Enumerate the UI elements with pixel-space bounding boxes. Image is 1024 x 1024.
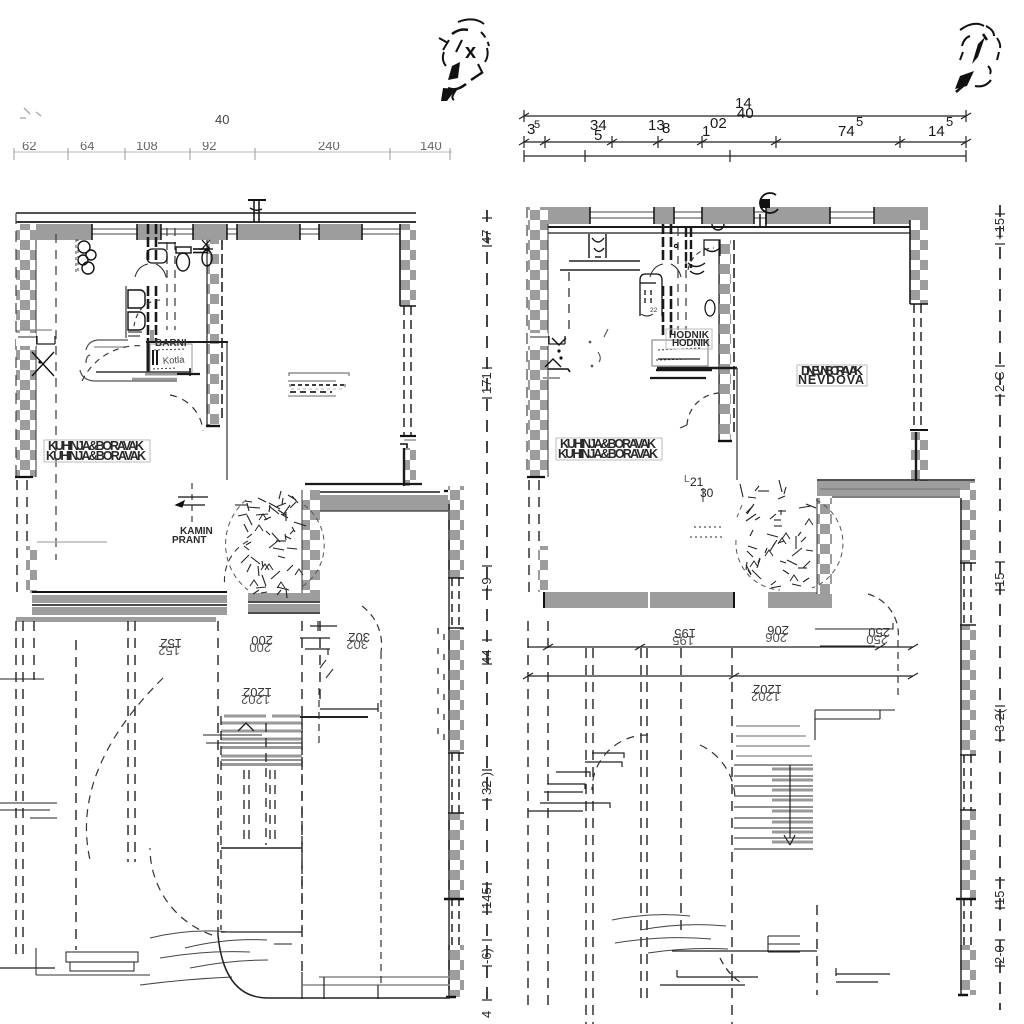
svg-text:KUHINJA&BORAVAK: KUHINJA&BORAVAK xyxy=(558,447,658,461)
svg-text:Kotla: Kotla xyxy=(162,354,185,367)
svg-text:1202: 1202 xyxy=(751,689,780,704)
svg-text:30: 30 xyxy=(700,486,714,500)
svg-text:2-C: 2-C xyxy=(992,371,1007,392)
svg-text:4: 4 xyxy=(479,1011,494,1018)
svg-text:2-0: 2-0 xyxy=(992,945,1007,964)
svg-text:302: 302 xyxy=(346,637,368,652)
svg-text:14: 14 xyxy=(928,123,945,140)
svg-text:+15: +15 xyxy=(992,218,1007,240)
svg-text:3-2(: 3-2( xyxy=(992,708,1007,732)
svg-text:47: 47 xyxy=(479,230,494,244)
svg-text:-9: -9 xyxy=(479,577,494,589)
svg-text:145: 145 xyxy=(479,887,494,909)
svg-text:8: 8 xyxy=(662,120,670,137)
svg-text:152: 152 xyxy=(158,643,180,658)
svg-text:22: 22 xyxy=(650,307,658,314)
svg-text:BARNI: BARNI xyxy=(155,338,187,349)
svg-text:74: 74 xyxy=(838,123,855,140)
svg-text:5: 5 xyxy=(594,127,602,144)
svg-text:15: 15 xyxy=(992,891,1007,905)
svg-text:NEVDOVA: NEVDOVA xyxy=(798,373,864,387)
svg-text:KUHINJA&BORAVAK: KUHINJA&BORAVAK xyxy=(46,449,146,463)
svg-text:200: 200 xyxy=(249,640,271,655)
svg-text:171: 171 xyxy=(479,372,494,394)
svg-text:-6): -6) xyxy=(479,948,494,964)
svg-text:02: 02 xyxy=(710,115,727,132)
svg-text:206: 206 xyxy=(765,630,787,645)
svg-text:195: 195 xyxy=(672,633,694,648)
svg-text:5: 5 xyxy=(534,119,540,131)
svg-text:32-): 32-) xyxy=(479,772,494,795)
svg-text:5: 5 xyxy=(946,114,953,129)
svg-text:5: 5 xyxy=(856,114,863,129)
svg-text:250: 250 xyxy=(866,632,888,647)
svg-text:40: 40 xyxy=(737,105,754,122)
svg-text:44: 44 xyxy=(479,650,494,664)
svg-text:PRANT: PRANT xyxy=(172,535,206,546)
svg-text:L: L xyxy=(684,474,690,485)
svg-text:x: x xyxy=(465,41,476,63)
svg-text:15: 15 xyxy=(992,573,1007,587)
svg-text:1202: 1202 xyxy=(241,692,270,707)
svg-text:HODNIK: HODNIK xyxy=(669,330,710,341)
svg-text:40: 40 xyxy=(215,112,229,127)
